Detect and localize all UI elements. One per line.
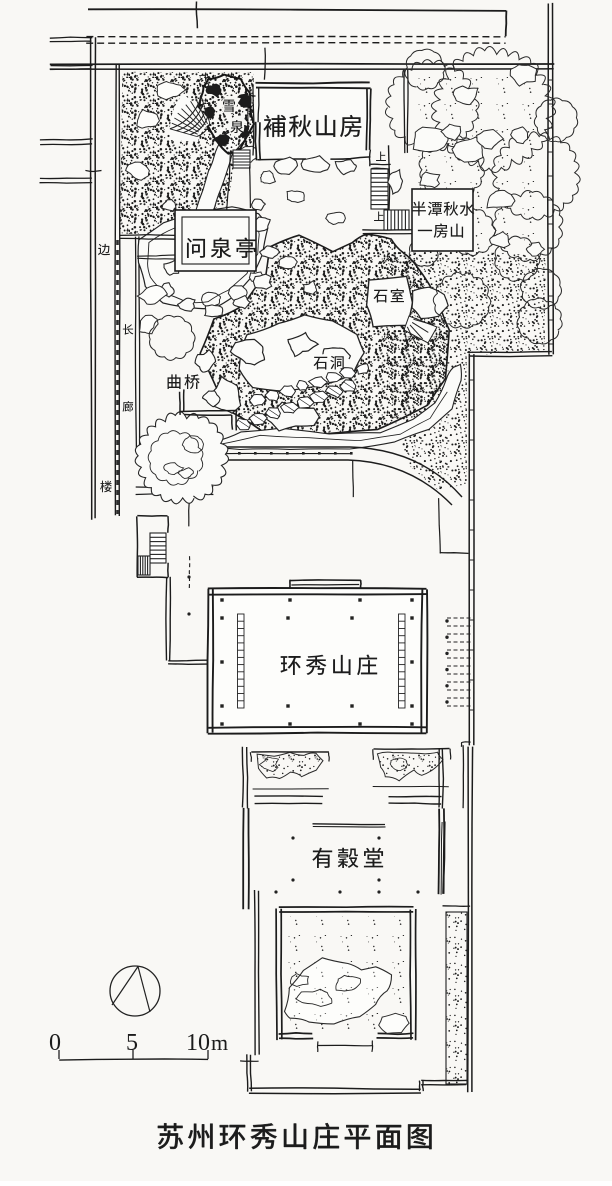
svg-text:10: 10: [186, 1030, 210, 1056]
svg-text:m: m: [211, 1030, 228, 1055]
svg-text:5: 5: [126, 1030, 138, 1056]
